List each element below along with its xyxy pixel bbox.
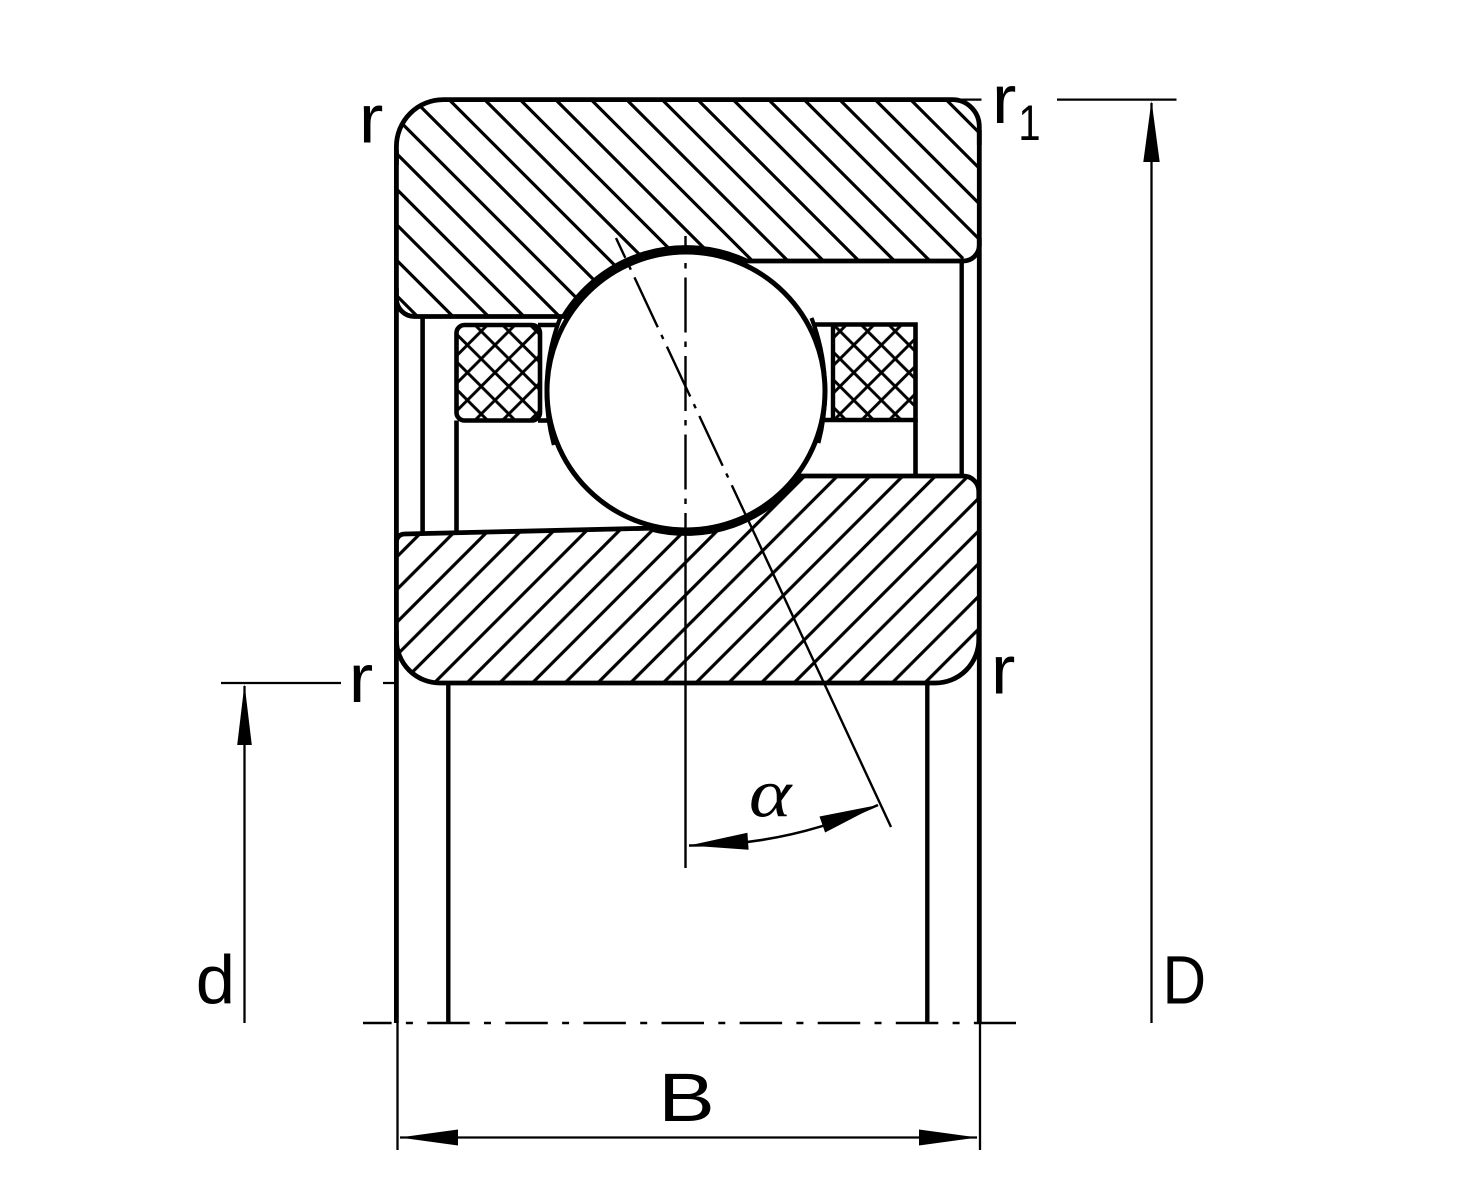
svg-text:r: r [991, 632, 1016, 709]
svg-text:B: B [658, 1059, 715, 1136]
svg-text:r: r [359, 81, 384, 158]
svg-text:D: D [1163, 941, 1207, 1018]
svg-text:d: d [196, 942, 235, 1019]
svg-text:α: α [749, 756, 794, 832]
svg-text:r: r [349, 640, 374, 717]
svg-text:1: 1 [1018, 95, 1040, 151]
svg-text:r: r [992, 61, 1017, 138]
